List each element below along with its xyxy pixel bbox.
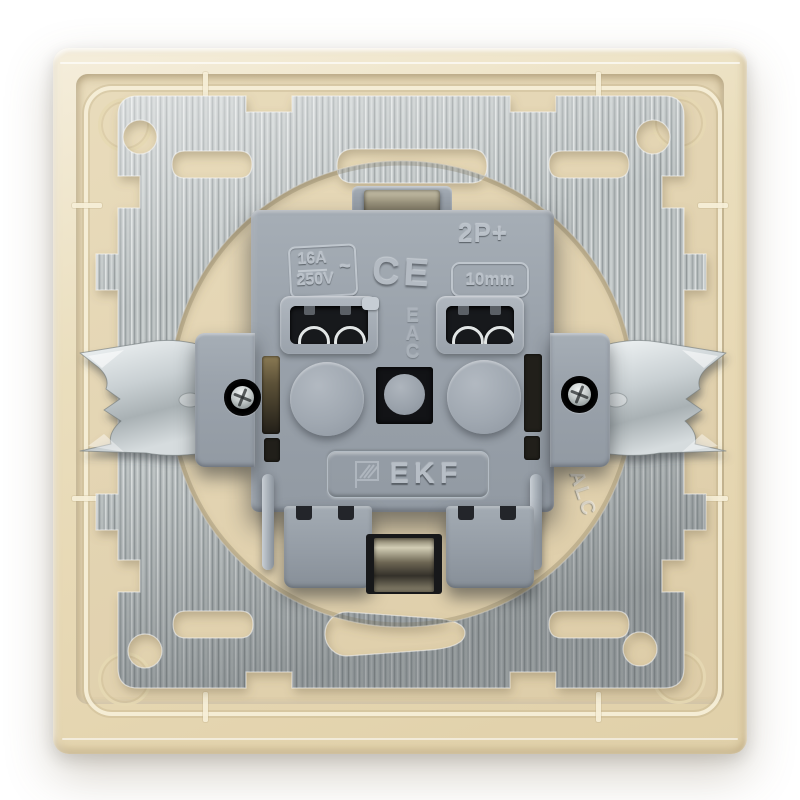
center-round-boss (384, 374, 425, 415)
foot-notch (500, 506, 516, 520)
wire-guide-arc (298, 326, 330, 344)
terminal-tab (458, 306, 469, 315)
product-photo-stage: ALC 16A ~ 250V CE 2P+ 10mm EAC (0, 0, 800, 800)
current-rating: 16A (297, 250, 327, 273)
left-round-boss (290, 362, 364, 436)
claw-screw-channel-right (524, 354, 542, 432)
side-pin-left (262, 474, 274, 570)
right-round-boss (447, 360, 521, 434)
poles-label: 2P+ (458, 218, 508, 249)
ce-mark: CE (371, 250, 434, 296)
right-terminal-opening (446, 306, 514, 344)
claw-screw-channel-left (262, 356, 280, 434)
ac-symbol: ~ (339, 256, 352, 280)
right-claw-screw-recess (561, 376, 598, 413)
ratings-box: 16A ~ 250V (288, 243, 359, 298)
foot-notch (458, 506, 474, 520)
terminal-latch (362, 297, 379, 310)
bottom-metal-clip (374, 538, 434, 592)
wire-strip-box: 10mm (451, 262, 529, 297)
left-foot (284, 506, 372, 588)
foot-notch (338, 506, 354, 520)
right-terminal (436, 296, 524, 354)
voltage-rating: 250V (296, 270, 334, 290)
ekf-flag-icon (354, 460, 380, 490)
eac-mark: EAC (386, 306, 438, 364)
wire-guide-arc (484, 326, 514, 344)
brand-text: EKF (390, 458, 463, 491)
terminal-tab (304, 306, 315, 315)
wire-guide-arc (452, 326, 484, 344)
center-square-opening (376, 367, 433, 424)
right-foot (446, 506, 534, 588)
brand-plate: EKF (327, 451, 489, 498)
right-claw-screw (565, 380, 595, 410)
foot-notch (296, 506, 312, 520)
wire-guide-arc (334, 326, 366, 344)
left-terminal-opening (290, 306, 368, 344)
side-slot (264, 438, 280, 462)
side-slot (524, 436, 540, 460)
left-claw-screw-recess (224, 379, 261, 416)
terminal-tab (340, 306, 351, 315)
terminal-tab (490, 306, 501, 315)
left-claw-screw (228, 383, 258, 413)
right-mounting-claw (591, 340, 726, 455)
